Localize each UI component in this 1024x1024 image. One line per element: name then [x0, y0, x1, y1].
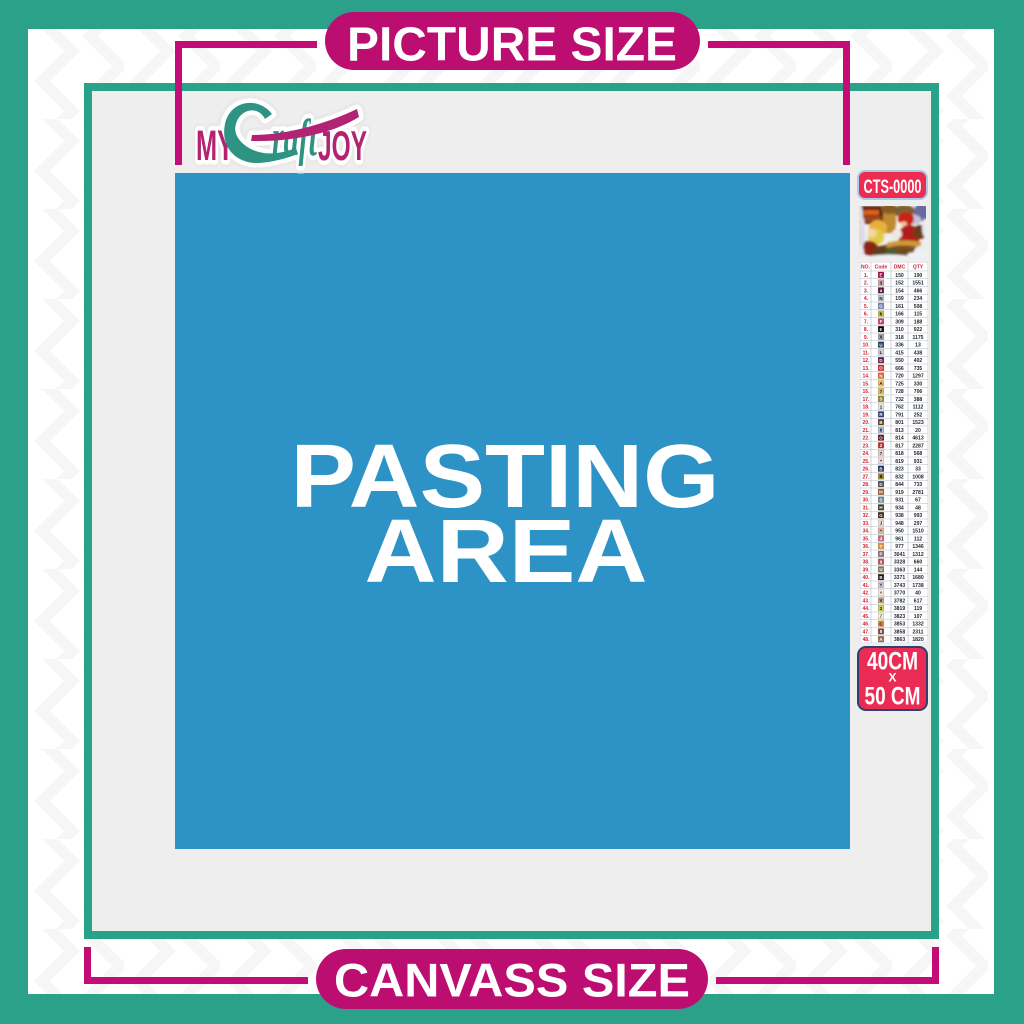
svg-text:144: 144: [914, 567, 923, 573]
svg-text:DMC: DMC: [894, 265, 906, 271]
svg-text:3770: 3770: [894, 591, 905, 597]
svg-text:14.: 14.: [862, 374, 870, 380]
svg-text:S: S: [880, 397, 883, 402]
svg-text:16.: 16.: [862, 389, 870, 395]
svg-text:934: 934: [895, 505, 904, 511]
svg-text:13: 13: [915, 343, 921, 349]
svg-text:*: *: [880, 528, 882, 533]
svg-text:568: 568: [914, 451, 923, 457]
svg-text:2781: 2781: [912, 490, 923, 496]
svg-text:1738: 1738: [912, 583, 923, 589]
svg-text:V: V: [880, 598, 883, 603]
svg-text:D: D: [879, 482, 882, 487]
svg-text:D: D: [879, 358, 882, 363]
svg-text:L: L: [880, 350, 883, 355]
svg-text:112: 112: [914, 536, 922, 542]
svg-text:G: G: [879, 513, 883, 518]
svg-text:725: 725: [895, 381, 904, 387]
svg-text:931: 931: [895, 498, 904, 504]
svg-text:AREA: AREA: [365, 502, 648, 602]
svg-text:922: 922: [914, 327, 923, 333]
svg-text:1510: 1510: [912, 529, 923, 535]
svg-text:733: 733: [914, 482, 923, 488]
svg-text:3041: 3041: [894, 552, 905, 558]
svg-text:961: 961: [895, 536, 904, 542]
svg-text:791: 791: [895, 412, 904, 418]
svg-text:844: 844: [895, 482, 904, 488]
svg-text:45.: 45.: [862, 614, 870, 620]
svg-text:67: 67: [915, 498, 921, 504]
svg-text:40.: 40.: [862, 575, 870, 581]
svg-text:154: 154: [895, 288, 904, 294]
svg-text:B: B: [879, 575, 882, 580]
svg-text:977: 977: [895, 544, 904, 550]
svg-text:150: 150: [895, 273, 904, 279]
svg-text:U: U: [879, 342, 882, 347]
svg-text:35.: 35.: [862, 536, 870, 542]
svg-text:48.: 48.: [862, 637, 870, 643]
svg-text:336: 336: [895, 343, 904, 349]
svg-text:40: 40: [915, 591, 921, 597]
svg-text:M: M: [879, 490, 883, 495]
svg-text:13.: 13.: [862, 366, 870, 372]
svg-text:12.: 12.: [862, 358, 870, 364]
svg-text:20: 20: [915, 428, 921, 434]
svg-text:1175: 1175: [912, 335, 923, 341]
svg-text:44.: 44.: [862, 606, 870, 612]
svg-text:2311: 2311: [912, 629, 923, 635]
svg-text:27.: 27.: [862, 474, 870, 480]
svg-text:36.: 36.: [862, 544, 870, 550]
svg-text:3743: 3743: [894, 583, 905, 589]
svg-text:39.: 39.: [862, 567, 870, 573]
svg-text:762: 762: [895, 405, 904, 411]
svg-text:1.: 1.: [864, 273, 869, 279]
svg-text:9.: 9.: [864, 335, 869, 341]
svg-text:732: 732: [895, 397, 904, 403]
svg-text:466: 466: [914, 288, 923, 294]
svg-text:33.: 33.: [862, 521, 870, 527]
svg-text:823: 823: [895, 467, 904, 473]
svg-text:814: 814: [895, 436, 904, 442]
svg-text:660: 660: [914, 560, 923, 566]
svg-text:388: 388: [914, 397, 923, 403]
svg-text:706: 706: [914, 389, 923, 395]
svg-text:3863: 3863: [894, 637, 905, 643]
svg-text:CTS-0000: CTS-0000: [864, 177, 922, 198]
svg-text:919: 919: [895, 490, 904, 496]
svg-text:Y: Y: [880, 583, 883, 588]
svg-text:3819: 3819: [894, 606, 905, 612]
svg-text:234: 234: [914, 296, 923, 302]
svg-text:617: 617: [914, 598, 923, 604]
svg-text:819: 819: [895, 459, 904, 465]
svg-text:1312: 1312: [912, 552, 923, 558]
svg-text:3823: 3823: [894, 614, 905, 620]
svg-text:26.: 26.: [862, 467, 870, 473]
svg-text:17.: 17.: [862, 397, 870, 403]
svg-text:46.: 46.: [862, 622, 870, 628]
svg-text:818: 818: [895, 451, 904, 457]
svg-text:190: 190: [914, 273, 923, 279]
svg-text:415: 415: [895, 350, 904, 356]
svg-text:735: 735: [914, 366, 923, 372]
svg-text:23.: 23.: [862, 443, 870, 449]
svg-text:801: 801: [895, 420, 904, 426]
svg-text:37.: 37.: [862, 552, 870, 558]
svg-text:50 CM: 50 CM: [865, 683, 921, 711]
svg-text:P: P: [880, 552, 883, 557]
svg-text:47.: 47.: [862, 629, 870, 635]
svg-text:402: 402: [914, 358, 923, 364]
svg-text:728: 728: [895, 389, 904, 395]
svg-text:PICTURE SIZE: PICTURE SIZE: [347, 19, 677, 71]
svg-text:1297: 1297: [912, 374, 923, 380]
svg-text:330: 330: [914, 381, 923, 387]
svg-text:832: 832: [895, 474, 904, 480]
svg-text:813: 813: [895, 428, 904, 434]
svg-text:1680: 1680: [912, 575, 923, 581]
svg-text:42.: 42.: [862, 591, 870, 597]
svg-text:20.: 20.: [862, 420, 870, 426]
svg-text:309: 309: [895, 319, 904, 325]
svg-text:H: H: [879, 505, 882, 510]
svg-text:43.: 43.: [862, 598, 870, 604]
svg-text:3363: 3363: [894, 567, 905, 573]
svg-text:5.: 5.: [864, 304, 869, 310]
svg-text:6.: 6.: [864, 312, 869, 318]
svg-text:S: S: [880, 497, 883, 502]
svg-text:152: 152: [895, 281, 904, 287]
svg-text:3858: 3858: [894, 629, 905, 635]
svg-text:4613: 4613: [912, 436, 923, 442]
svg-text:19.: 19.: [862, 412, 870, 418]
svg-text:G: G: [879, 304, 883, 309]
svg-text:8.: 8.: [864, 327, 869, 333]
svg-text:2.: 2.: [864, 281, 869, 287]
svg-text:NO.: NO.: [861, 265, 871, 271]
svg-text:11.: 11.: [863, 350, 870, 356]
svg-text:Code: Code: [875, 265, 888, 271]
svg-text:3328: 3328: [894, 560, 905, 566]
svg-text:3.: 3.: [864, 288, 869, 294]
svg-text:T: T: [880, 544, 883, 549]
svg-text:161: 161: [895, 304, 904, 310]
svg-text:115: 115: [914, 312, 922, 318]
svg-text:1332: 1332: [912, 622, 923, 628]
svg-text:666: 666: [895, 366, 904, 372]
svg-text:10.: 10.: [862, 343, 870, 349]
svg-text:7.: 7.: [864, 319, 869, 325]
svg-text:166: 166: [895, 312, 904, 318]
svg-text:1112: 1112: [913, 405, 924, 411]
svg-text:188: 188: [914, 319, 923, 325]
svg-text:N: N: [879, 296, 882, 301]
svg-text:h: h: [880, 311, 883, 316]
svg-text:E: E: [880, 273, 883, 278]
svg-text:720: 720: [895, 374, 904, 380]
svg-text:3853: 3853: [894, 622, 905, 628]
svg-text:2287: 2287: [912, 443, 923, 449]
svg-text:N: N: [879, 373, 882, 378]
svg-text:550: 550: [895, 358, 904, 364]
svg-text:438: 438: [914, 350, 923, 356]
svg-text:48: 48: [915, 505, 921, 511]
svg-text:30.: 30.: [862, 498, 870, 504]
svg-text:1523: 1523: [912, 420, 923, 426]
svg-text:252: 252: [914, 412, 923, 418]
svg-text:107: 107: [914, 614, 923, 620]
svg-text:21.: 21.: [862, 428, 870, 434]
svg-text:159: 159: [895, 296, 904, 302]
svg-text:3371: 3371: [894, 575, 905, 581]
svg-text:508: 508: [914, 304, 923, 310]
svg-text:15.: 15.: [862, 381, 870, 387]
svg-text:31.: 31.: [862, 505, 870, 511]
svg-text:28.: 28.: [862, 482, 870, 488]
svg-text:32.: 32.: [862, 513, 870, 519]
svg-text:1008: 1008: [912, 474, 923, 480]
svg-text:1551: 1551: [912, 281, 923, 287]
svg-text:33: 33: [915, 467, 921, 473]
svg-text:4.: 4.: [864, 296, 869, 302]
svg-text:34.: 34.: [862, 529, 870, 535]
svg-text:U: U: [879, 567, 882, 572]
svg-text:41.: 41.: [862, 583, 870, 589]
svg-text:CANVASS SIZE: CANVASS SIZE: [334, 955, 690, 1008]
svg-text:QTY: QTY: [913, 265, 924, 271]
svg-text:119: 119: [914, 606, 922, 612]
svg-text:+: +: [880, 459, 883, 464]
svg-text:38.: 38.: [862, 560, 870, 566]
svg-text:B: B: [879, 466, 882, 471]
svg-text:1820: 1820: [912, 637, 923, 643]
svg-text:948: 948: [895, 521, 904, 527]
svg-text:22.: 22.: [862, 436, 870, 442]
svg-text:X: X: [880, 335, 883, 340]
svg-text:^: ^: [880, 590, 883, 595]
svg-text:25.: 25.: [862, 459, 870, 465]
svg-text:817: 817: [895, 443, 904, 449]
svg-text:310: 310: [895, 327, 904, 333]
svg-text:F: F: [880, 319, 883, 324]
svg-text:O: O: [879, 435, 883, 440]
svg-text:18.: 18.: [862, 405, 870, 411]
svg-text:950: 950: [895, 529, 904, 535]
svg-text:938: 938: [895, 513, 904, 519]
svg-text:B: B: [879, 420, 882, 425]
svg-text:E: E: [880, 327, 883, 332]
svg-text:O: O: [879, 366, 883, 371]
svg-text:297: 297: [914, 521, 923, 527]
svg-text:3782: 3782: [894, 598, 905, 604]
svg-text:24.: 24.: [862, 451, 870, 457]
svg-text:1346: 1346: [912, 544, 923, 550]
svg-text:318: 318: [895, 335, 904, 341]
svg-text:29.: 29.: [862, 490, 870, 496]
svg-text:931: 931: [914, 459, 923, 465]
svg-text:993: 993: [914, 513, 923, 519]
